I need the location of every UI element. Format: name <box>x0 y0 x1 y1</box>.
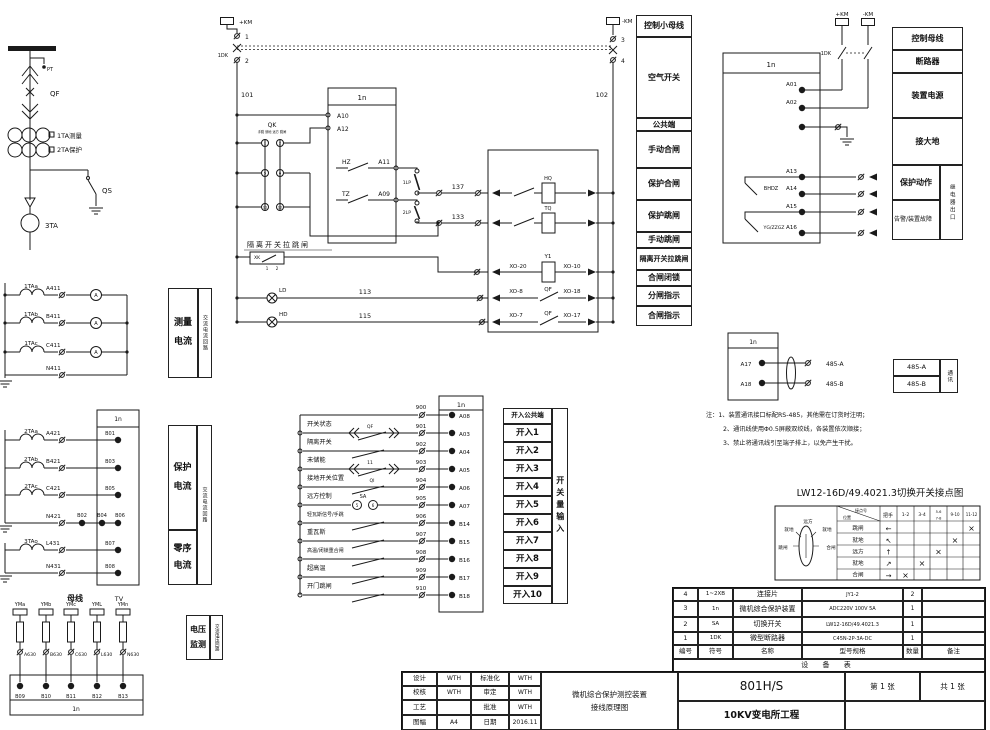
qf-aux: QF <box>544 311 552 317</box>
tb-cell: 设计 <box>402 672 437 686</box>
qk-contact: 2 <box>279 142 281 146</box>
bom-note <box>922 588 985 601</box>
pos-label: 合闸 <box>852 571 864 579</box>
term-label: B08 <box>105 564 115 570</box>
term-xo18: XO-18 <box>563 289 581 295</box>
dial-topleft: 就地 <box>784 526 794 533</box>
ct3-label: 3TA <box>45 222 58 230</box>
wire-label: N431 <box>46 564 61 570</box>
yg-zzgz-contact: YG/ZZGZ <box>763 225 785 231</box>
term-label: B17 <box>459 576 470 582</box>
corner-position: 位置 <box>843 514 851 520</box>
handle-header: 把手 <box>883 512 893 519</box>
tb-cell: 批准 <box>471 700 509 715</box>
fuse-label: YMn <box>117 602 129 608</box>
ct-label: 2TAa <box>24 429 38 435</box>
wire-label: N411 <box>46 366 61 372</box>
di-label: 隔离开关 <box>307 440 332 446</box>
wire-label: A421 <box>46 431 61 437</box>
device-1n: 1n <box>358 94 367 102</box>
legend-row: 分闸指示 <box>636 286 692 306</box>
label-line: 电压 <box>190 625 206 635</box>
sa-6: 6 <box>372 503 375 508</box>
wire-137: 137 <box>452 183 464 191</box>
tb-cell: A4 <box>437 715 471 730</box>
wire-label: 902 <box>416 442 427 448</box>
term-a16: A16 <box>786 225 797 231</box>
term-label: B05 <box>105 486 115 492</box>
ct-label: 2TAc <box>24 484 37 490</box>
section-side-label: 交流电压回路 <box>210 615 223 660</box>
handle-arrow: ↗ <box>886 560 892 568</box>
qk-caption: 手跳 就地 远方 跳闸 <box>258 129 287 134</box>
term-a11: A11 <box>378 159 390 166</box>
term-label: A07 <box>459 504 470 510</box>
ammeter: A <box>94 321 98 327</box>
bom-header: 编号 <box>673 645 698 659</box>
plus-km-label: +KM <box>835 12 848 18</box>
contact-mark: × <box>919 559 926 568</box>
di-label: 轻瓦斯信号/手跳 <box>307 513 344 518</box>
wire-label: A630 <box>24 652 36 658</box>
term-xo20: XO-20 <box>509 264 527 270</box>
fuse-label: YMc <box>65 602 76 608</box>
term-xo7: XO-7 <box>509 313 523 319</box>
term-label: A06 <box>459 486 470 492</box>
minus-km-label: -KM <box>622 19 633 25</box>
section-label-zeroseq: 零序电流 <box>168 530 197 585</box>
tb-cell: 图幅 <box>402 715 437 730</box>
legend-row: 合闸指示 <box>636 306 692 326</box>
wire-label: 903 <box>416 460 427 466</box>
pos-label: 远方 <box>852 548 864 556</box>
bom-no: 4 <box>673 588 698 601</box>
term-a01: A01 <box>786 82 797 88</box>
legend-row: 隔离开关拉跳闸 <box>636 248 692 270</box>
wire-label: L630 <box>101 652 112 658</box>
legend-row: 合闸闭锁 <box>636 270 692 286</box>
term-label: B02 <box>77 513 87 519</box>
bom-header: 符号 <box>698 645 733 659</box>
di-label: 高温/闭锁重合闸 <box>307 549 344 554</box>
schematic-sheet: PT QF 1TA测量 2TA保护 QS 3TA +KM 1 1DK 2 101… <box>0 0 990 730</box>
handle-arrow: ← <box>886 525 892 533</box>
di-legend-row: 开入10 <box>503 586 552 604</box>
plus-km-label: +KM <box>239 20 252 26</box>
bom-note <box>922 617 985 632</box>
wire-113: 113 <box>359 288 371 296</box>
term-label: B01 <box>105 431 115 437</box>
di-legend-head: 开入公共端 <box>503 408 552 424</box>
col-header: 5-6 <box>936 510 943 514</box>
dk-label: 1DK <box>218 53 229 59</box>
label-line: 监测 <box>190 640 206 650</box>
di-legend-row: 开入5 <box>503 496 552 514</box>
device-1n: 1n <box>72 706 80 713</box>
legend-row: 空气开关 <box>636 37 692 118</box>
term-a10: A10 <box>337 113 349 120</box>
fuse-label: YMa <box>14 602 25 608</box>
voltage-monitor-section: 母线 TV 1n YMa YMb YMc YML YMn A630 B630 C… <box>10 593 143 715</box>
qk-contact: 1 <box>264 142 266 146</box>
bom-qty: 1 <box>903 617 922 632</box>
lw12-title: LW12-16D/49.4021.3切换开关接点图 <box>775 489 985 499</box>
device-1n: 1n <box>749 339 757 346</box>
contact-sa: SA <box>360 494 367 500</box>
term-a02: A02 <box>786 100 797 106</box>
dial-left: 跳闸 <box>778 544 788 551</box>
handle-arrow: ↖ <box>886 537 892 545</box>
drawing-title: 微机综合保护测控装置 接线原理图 <box>541 672 678 730</box>
wire-label: C411 <box>46 343 61 349</box>
ct-label: 3TAo <box>24 539 38 545</box>
sheet-total: 共 1 张 <box>920 672 985 701</box>
pos-label: 就地 <box>852 536 864 544</box>
lw12-switch-table: 远方 就地 就地 跳闸 合闸 接点号 位置 把手 1-2 3-4 5-6 7-8… <box>775 506 980 580</box>
tb-cell: 校核 <box>402 686 437 700</box>
qk-contact: 11 <box>263 206 268 210</box>
term-label: A03 <box>459 432 470 438</box>
lamp-hd: HD <box>279 312 288 318</box>
pos-label: 就地 <box>852 559 864 567</box>
bom-header: 名称 <box>733 645 802 659</box>
bom-model: ADC220V 100V 5A <box>802 601 903 617</box>
device-1n: 1n <box>767 61 776 69</box>
tb-cell: 审定 <box>471 686 509 700</box>
single-line-diagram: PT QF 1TA测量 2TA保护 QS 3TA <box>8 46 113 250</box>
term-label: B11 <box>66 694 76 700</box>
tb-cell: WTH <box>509 672 541 686</box>
protection-current-section: 1n 2TAa 2TAb 2TAc 3TAo A421 B421 C421 N4… <box>0 410 139 585</box>
wire-133: 133 <box>452 213 464 221</box>
section-label-voltage: 电压监测 <box>186 615 210 660</box>
fuse-label: YML <box>91 602 102 608</box>
coil-tq: TQ <box>544 206 552 212</box>
notes-line: 3、禁止将通讯线引至端子排上，以免产生干扰。 <box>723 441 857 447</box>
label-line: 保护 <box>173 463 191 474</box>
col-header: 3-4 <box>918 512 926 518</box>
wire-485a: 485-A <box>826 361 844 368</box>
ammeter: A <box>94 350 98 356</box>
col-header: 11-12 <box>966 512 978 517</box>
wire-label: 908 <box>416 550 427 556</box>
contact-qi: QI <box>370 478 375 484</box>
coil-hq: HQ <box>544 176 552 182</box>
bom-header: 型号规格 <box>802 645 903 659</box>
term-a13: A13 <box>786 169 797 175</box>
wire-101: 101 <box>241 91 253 99</box>
legend-row: 手动合闸 <box>636 131 692 168</box>
corner-contact: 接点号 <box>855 507 867 513</box>
tb-empty-cell <box>845 701 985 730</box>
wire-115: 115 <box>359 312 371 320</box>
term-label: B10 <box>41 694 51 700</box>
device-1n: 1n <box>114 416 122 423</box>
tb-cell: 2016.11 <box>509 715 541 730</box>
control-circuit: +KM 1 1DK 2 101 -KM 3 4 102 QK 手跳 就地 远方 … <box>218 18 633 328</box>
legend-row: 保护动作 <box>892 165 940 200</box>
link-1lp: 1LP <box>403 180 411 186</box>
bom-qty: 1 <box>903 632 922 645</box>
tb-cell: 日期 <box>471 715 509 730</box>
comm-row: 485-B <box>893 376 940 393</box>
ct-label: 1TAc <box>24 341 37 347</box>
term-a15: A15 <box>786 204 797 210</box>
bom-sym: 1n <box>698 601 733 617</box>
qs-label: QS <box>102 187 113 195</box>
di-legend-row: 开入6 <box>503 514 552 532</box>
wire-900: 900 <box>416 405 427 411</box>
term-a12: A12 <box>337 126 349 133</box>
legend-row: 控制母线 <box>892 27 963 50</box>
di-legend-row: 开入4 <box>503 478 552 496</box>
wire-label: B421 <box>46 459 61 465</box>
wire-label: C421 <box>46 486 61 492</box>
project-name: 10KV变电所工程 <box>678 701 845 730</box>
xk-1: 1 <box>266 266 269 271</box>
fuse-label: YMb <box>40 602 52 608</box>
term-label: B14 <box>459 522 470 528</box>
legend-row: 公共端 <box>636 118 692 131</box>
ct2-label: 2TA保护 <box>57 145 82 154</box>
legend-row: 保护合闸 <box>636 168 692 200</box>
wire-label: A411 <box>46 286 61 292</box>
ct-label: 1TAb <box>24 312 38 318</box>
handle-arrow: ↑ <box>886 549 892 557</box>
ct-label: 2TAb <box>24 457 38 463</box>
handle-arrow: → <box>886 572 892 580</box>
sa-5: 5 <box>356 503 359 508</box>
di-label: 接地开关位置 <box>307 476 344 482</box>
di-legend-row: 开入9 <box>503 568 552 586</box>
label-line: 电流 <box>173 482 191 493</box>
bom-model: LW12-16D/49.4021.3 <box>802 617 903 632</box>
ct1-label: 1TA测量 <box>57 132 83 140</box>
link-2lp: 2LP <box>403 210 411 216</box>
contact-11: 11 <box>367 460 373 466</box>
term-label: B16 <box>459 558 470 564</box>
col-header: 1-2 <box>902 512 910 518</box>
term-a18: A18 <box>741 382 752 388</box>
drawing-title-line: 微机综合保护测控装置 <box>572 690 647 699</box>
bom-name: 微型断路器 <box>733 632 802 645</box>
drawing-title-line: 接线原理图 <box>591 703 629 712</box>
tb-cell: WTH <box>509 686 541 700</box>
device-1n: 1n <box>457 401 465 409</box>
wire-label: B411 <box>46 314 61 320</box>
legend-row: 装置电源 <box>892 73 963 118</box>
wire-label: 904 <box>416 478 427 484</box>
bom-name: 切换开关 <box>733 617 802 632</box>
isolation-trip-label: 隔离开关拉跳闸 <box>247 240 310 249</box>
contact-mark: × <box>902 571 909 580</box>
legend-row: 手动跳闸 <box>636 232 692 248</box>
wire-label: 906 <box>416 514 427 520</box>
wire-1: 1 <box>245 34 249 41</box>
di-label: 未储能 <box>307 458 326 464</box>
section-side-label: 交流电流回路 <box>198 288 212 378</box>
bom-model: JY1-2 <box>802 588 903 601</box>
bom-sym: 1DK <box>698 632 733 645</box>
section-side-label: 交流电流回路 <box>197 425 212 585</box>
label-line: 零序 <box>173 544 191 555</box>
digital-input-section: 900 A08 1n QF 11 QI SA 5 6 901 902 903 9… <box>298 396 483 612</box>
wire-2: 2 <box>245 58 249 65</box>
bom-no: 2 <box>673 617 698 632</box>
comm-485-section: 1n A17 A18 485-A 485-B <box>728 333 844 400</box>
term-label: B13 <box>118 694 128 700</box>
wire-label: N630 <box>127 652 139 658</box>
contact-qf: QF <box>367 424 374 430</box>
term-a17: A17 <box>741 362 752 368</box>
tb-cell: 工艺 <box>402 700 437 715</box>
tb-cell: WTH <box>437 686 471 700</box>
comm-row: 485-A <box>893 359 940 376</box>
term-label: B15 <box>459 540 470 546</box>
wire-485b: 485-B <box>826 381 844 388</box>
notes-1: 1、装置通讯接口标配RS-485，其他需在订货时注明； <box>718 412 868 419</box>
qk-contact: 6 <box>279 172 282 176</box>
wire-label: C630 <box>75 652 87 658</box>
legend-row: 断路器 <box>892 50 963 73</box>
xk-contact: XK <box>254 255 261 261</box>
col-header: 9-10 <box>950 512 960 517</box>
hz-contact: HZ <box>342 159 351 166</box>
section-label-protect: 保护电流 <box>168 425 197 530</box>
bom-no: 1 <box>673 632 698 645</box>
ct-label: 1TAa <box>24 284 38 290</box>
term-label: B07 <box>105 541 115 547</box>
di-legend-row: 开入7 <box>503 532 552 550</box>
bom-header: 数量 <box>903 645 922 659</box>
term-label: A04 <box>459 450 470 456</box>
ammeter: A <box>94 293 98 299</box>
legend-row: 保护跳闸 <box>636 200 692 232</box>
di-legend-row: 开入8 <box>503 550 552 568</box>
breaker-mechanism: HQ TQ XO-20 Y1 XO-10 XO-8 QF XO-18 XO-7 … <box>488 150 615 332</box>
lamp-ld: LD <box>279 288 286 294</box>
contact-mark: × <box>968 524 975 533</box>
bom-name: 连接片 <box>733 588 802 601</box>
dial-topright: 就地 <box>822 526 832 533</box>
sheet-number: 第 1 张 <box>845 672 920 701</box>
legend-row: 接大地 <box>892 118 963 165</box>
wire-102: 102 <box>596 91 608 99</box>
term-label: B09 <box>15 694 25 700</box>
bom-name: 微机综合保护装置 <box>733 601 802 617</box>
term-xo17: XO-17 <box>563 313 581 319</box>
model-number: 801H/S <box>678 672 845 701</box>
term-label: B18 <box>459 594 470 600</box>
measuring-current-section: A A A 1TAa 1TAb 1TAc A411 B411 C411 N411 <box>0 283 129 387</box>
term-xo8: XO-8 <box>509 289 523 295</box>
qk-label: QK <box>268 122 278 129</box>
term-label: A05 <box>459 468 470 474</box>
comm-side: 通讯 <box>940 359 958 393</box>
di-label: 重瓦斯 <box>307 530 326 536</box>
di-legend-row: 开入2 <box>503 442 552 460</box>
bom-header: 备注 <box>922 645 985 659</box>
wire-label: B630 <box>50 652 62 658</box>
notes-line: 注：1、装置通讯接口标配RS-485，其他需在订货时注明； <box>706 413 868 419</box>
label-line: 电流 <box>174 337 192 348</box>
tz-contact: TZ <box>341 191 350 198</box>
tb-cell: 标准化 <box>471 672 509 686</box>
tb-cell: WTH <box>437 672 471 686</box>
term-a08: A08 <box>459 414 470 420</box>
term-label: B06 <box>115 513 125 519</box>
di-legend-side: 开关量输入 <box>552 408 568 604</box>
di-label: 超高温 <box>307 566 326 572</box>
qf-aux: QF <box>544 287 552 293</box>
bom-qty: 1 <box>903 601 922 617</box>
bom-sym: SA <box>698 617 733 632</box>
dk-label: 1DK <box>821 51 832 57</box>
pos-label: 跳闸 <box>852 524 864 532</box>
section-label-measure: 测量电流 <box>168 288 198 378</box>
di-label: 远方控制 <box>307 494 332 500</box>
pt-label: PT <box>47 67 54 73</box>
term-a09: A09 <box>378 191 390 198</box>
term-a14: A14 <box>786 186 797 192</box>
wire-label: 905 <box>416 496 427 502</box>
wire-label: 901 <box>416 424 427 430</box>
wire-label: 910 <box>416 586 427 592</box>
term-label: B03 <box>105 459 115 465</box>
wire-label: 907 <box>416 532 427 538</box>
notes-head: 注： <box>706 412 718 419</box>
wire-3: 3 <box>621 37 625 44</box>
tb-cell: WTH <box>509 700 541 715</box>
legend-row: 控制小母线 <box>636 15 692 37</box>
legend-row: 告警/装置故障 <box>892 200 940 240</box>
contact-mark: × <box>952 536 959 545</box>
dial-top: 远方 <box>803 518 813 525</box>
col-header: 7-8 <box>936 517 943 521</box>
legend-side: 继电器出口 <box>940 165 963 240</box>
coil-y1: Y1 <box>544 254 552 260</box>
minus-km-label: -KM <box>863 12 874 18</box>
wire-label: L431 <box>46 541 60 547</box>
bom-qty: 2 <box>903 588 922 601</box>
bom-sym: 1~2XB <box>698 588 733 601</box>
qk-contact: 12 <box>278 206 283 210</box>
wire-4: 4 <box>621 58 625 65</box>
di-label: 开关状态 <box>307 422 332 428</box>
bom-note <box>922 601 985 617</box>
xk-2: 2 <box>276 266 279 271</box>
label-line: 测量 <box>174 318 192 329</box>
bom-model: C45N-2P-3A-DC <box>802 632 903 645</box>
bom-no: 3 <box>673 601 698 617</box>
dial-right: 合闸 <box>826 544 836 551</box>
qk-contact: 5 <box>264 172 266 176</box>
wire-label: 909 <box>416 568 427 574</box>
label-line: 电流 <box>173 561 191 572</box>
tb-cell <box>437 700 471 715</box>
term-label: B12 <box>92 694 102 700</box>
wire-label: N421 <box>46 514 61 520</box>
di-legend-row: 开入1 <box>503 424 552 442</box>
bhdz-contact: BHDZ <box>764 186 779 192</box>
di-label: 开门跳闸 <box>307 584 332 590</box>
notes-line: 2、通讯线使用Φ0.5屏蔽双绞线，各装置依次顺接； <box>723 427 865 433</box>
bom-note <box>922 632 985 645</box>
term-xo10: XO-10 <box>563 264 581 270</box>
term-label: B04 <box>97 513 107 519</box>
di-legend-row: 开入3 <box>503 460 552 478</box>
device-power-section: 1n A01 A02 A13 A14 A15 A16 +KM 1DK -KM B… <box>723 12 877 243</box>
